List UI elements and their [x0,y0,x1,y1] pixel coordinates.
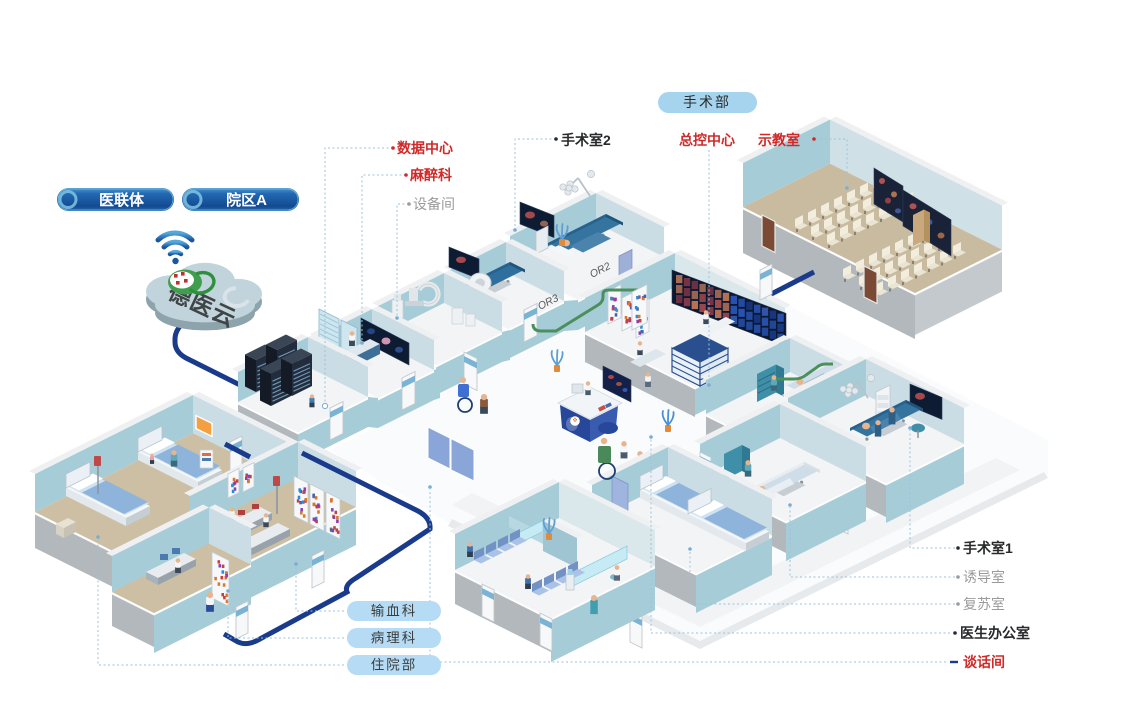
svg-text:示教室: 示教室 [758,132,800,148]
svg-text:住院部: 住院部 [371,658,418,673]
svg-text:手术部: 手术部 [683,94,731,110]
svg-text:医生办公室: 医生办公室 [960,625,1030,641]
svg-text:病理科: 病理科 [371,631,418,646]
svg-text:总控中心: 总控中心 [679,132,735,148]
svg-text:手术室1: 手术室1 [963,540,1013,556]
svg-text:输血科: 输血科 [371,604,418,619]
svg-text:设备间: 设备间 [413,196,455,212]
svg-text:麻醉科: 麻醉科 [409,167,452,183]
svg-text:院区A: 院区A [226,191,267,209]
svg-text:谈话间: 谈话间 [963,654,1005,670]
svg-text:诱导室: 诱导室 [963,569,1005,585]
svg-text:复苏室: 复苏室 [963,596,1005,612]
svg-text:医联体: 医联体 [99,191,145,209]
svg-text:手术室2: 手术室2 [561,132,611,148]
svg-text:数据中心: 数据中心 [397,140,453,156]
